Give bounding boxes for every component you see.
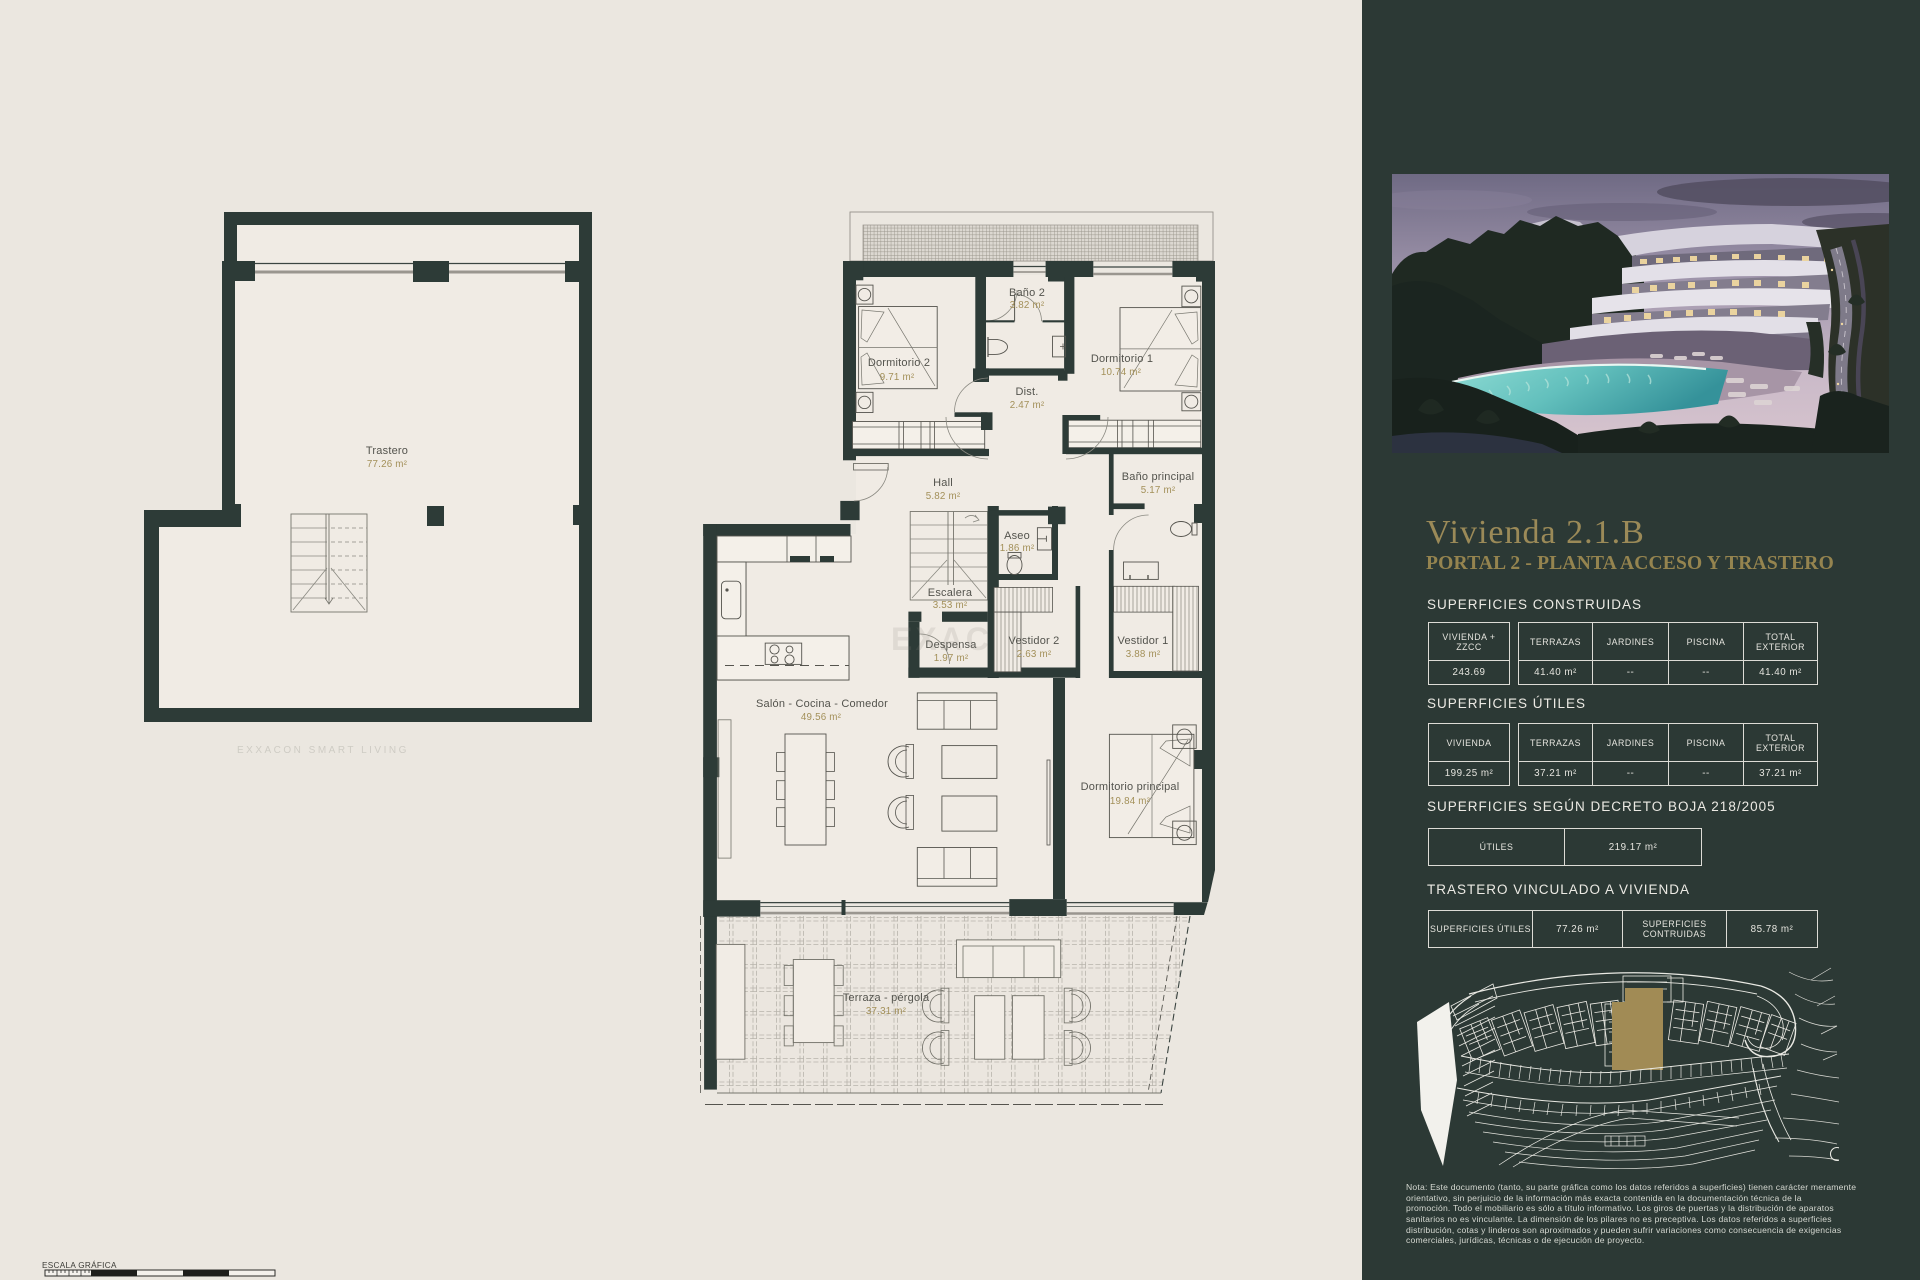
svg-text:Vestidor 2: Vestidor 2 [1009, 635, 1060, 647]
svg-text:Hall: Hall [933, 477, 953, 489]
svg-text:5.82 m²: 5.82 m² [926, 491, 961, 502]
svg-text:10.74 m²: 10.74 m² [1101, 367, 1142, 378]
svg-text:Baño principal: Baño principal [1122, 471, 1195, 483]
svg-text:Salón - Cocina - Comedor: Salón - Cocina - Comedor [756, 698, 888, 710]
svg-text:EXXACON SMART LIVING: EXXACON SMART LIVING [237, 745, 409, 756]
svg-text:Vestidor 1: Vestidor 1 [1118, 635, 1169, 647]
svg-text:2.47 m²: 2.47 m² [1010, 400, 1045, 411]
svg-text:Dist.: Dist. [1016, 386, 1039, 398]
svg-text:Baño 2: Baño 2 [1009, 287, 1045, 299]
svg-text:EXAC: EXAC [891, 621, 992, 657]
svg-text:Dormitorio 2: Dormitorio 2 [868, 357, 930, 369]
svg-text:3.53 m²: 3.53 m² [933, 600, 968, 611]
svg-text:Trastero: Trastero [366, 445, 408, 457]
svg-text:Dormitorio 1: Dormitorio 1 [1091, 353, 1153, 365]
svg-text:2.63 m²: 2.63 m² [1017, 649, 1052, 660]
svg-text:1.86 m²: 1.86 m² [1000, 543, 1035, 554]
svg-text:9.71 m²: 9.71 m² [880, 372, 915, 383]
svg-text:77.26 m²: 77.26 m² [367, 459, 408, 470]
svg-text:5.17 m²: 5.17 m² [1141, 485, 1176, 496]
svg-text:37.31 m²: 37.31 m² [866, 1006, 907, 1017]
svg-text:Aseo: Aseo [1004, 530, 1030, 542]
svg-text:ESCALA GRÁFICA: ESCALA GRÁFICA [42, 1260, 117, 1270]
svg-text:Escalera: Escalera [928, 587, 973, 599]
svg-text:3.82 m²: 3.82 m² [1010, 300, 1045, 311]
svg-text:Terraza - pérgola: Terraza - pérgola [843, 992, 930, 1004]
svg-text:49.56 m²: 49.56 m² [801, 712, 842, 723]
svg-text:3.88 m²: 3.88 m² [1126, 649, 1161, 660]
svg-text:Dormitorio principal: Dormitorio principal [1081, 781, 1180, 793]
svg-text:19.84 m²: 19.84 m² [1110, 796, 1151, 807]
